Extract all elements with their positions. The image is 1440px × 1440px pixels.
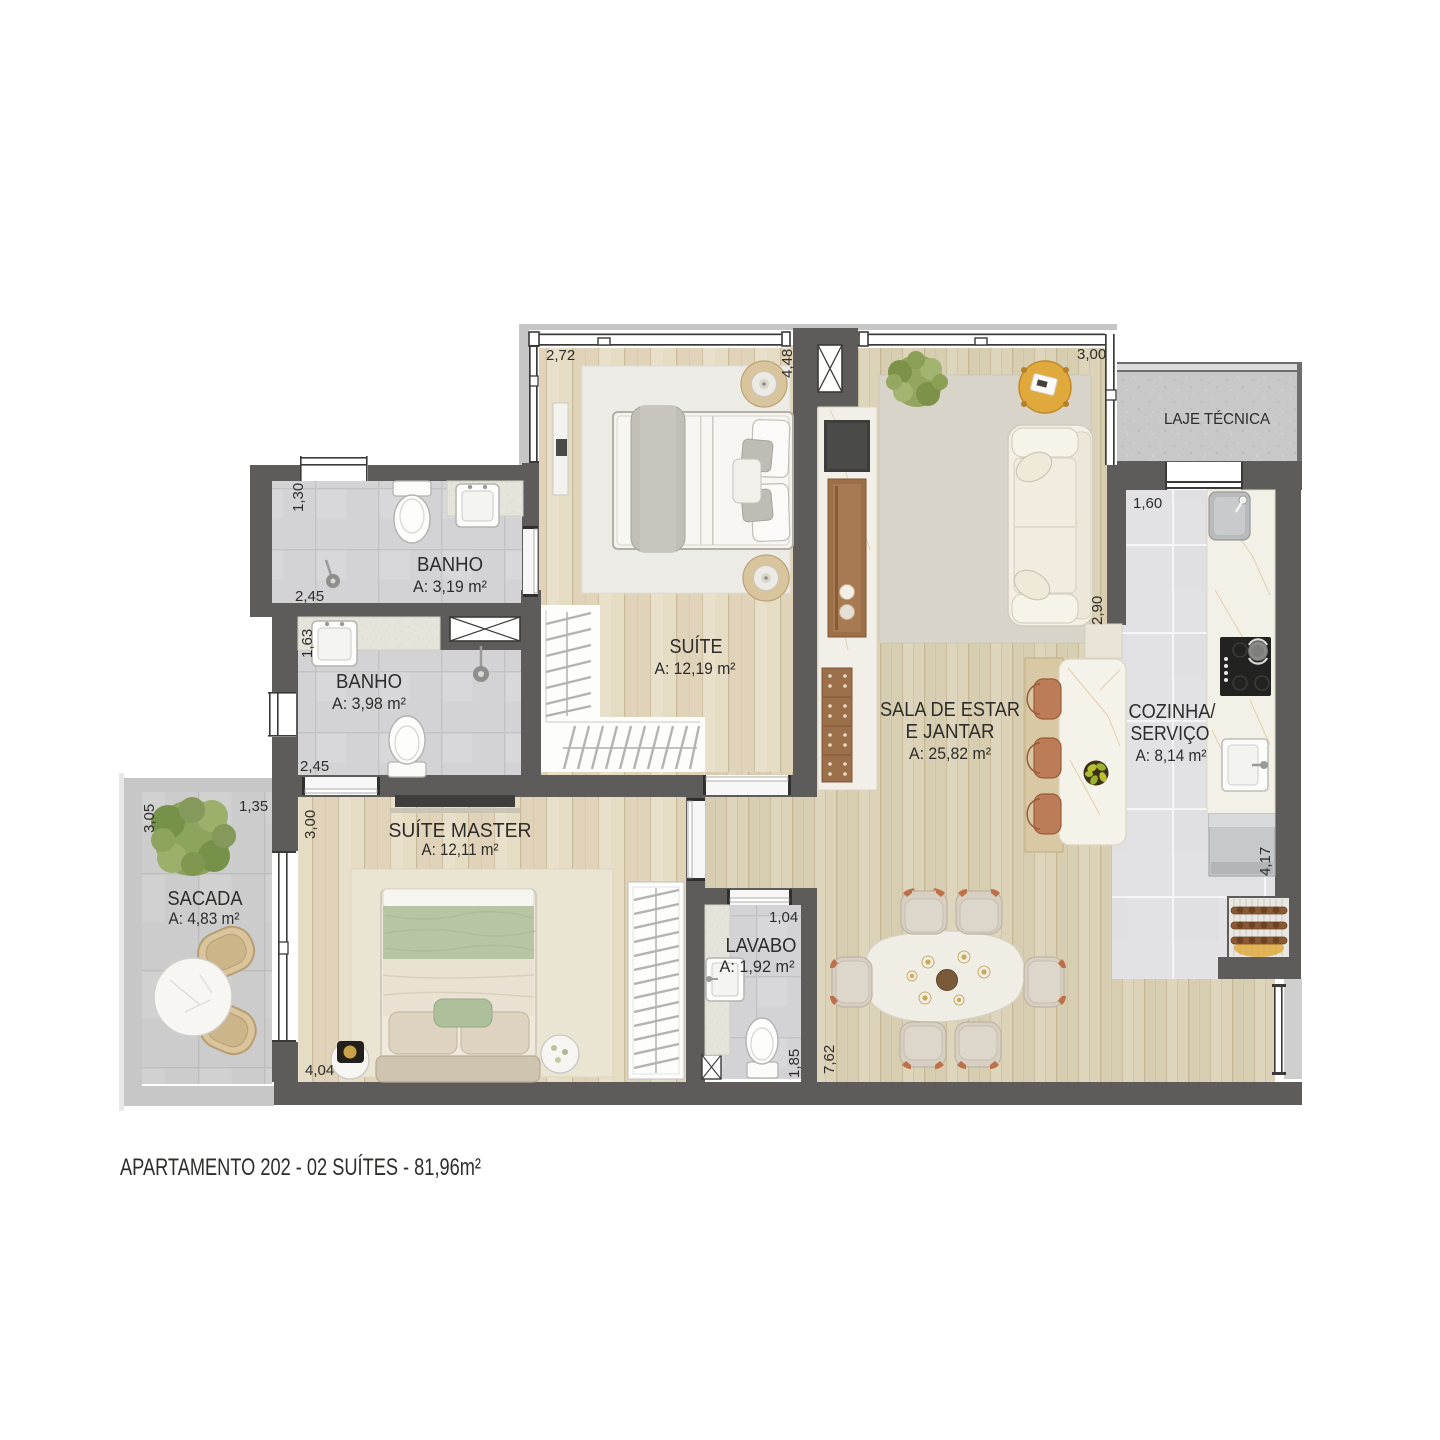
svg-text:SUÍTE: SUÍTE (670, 635, 723, 658)
svg-text:A: 1,92 m²: A: 1,92 m² (720, 957, 795, 976)
svg-text:A: 12,11 m²: A: 12,11 m² (422, 840, 499, 859)
svg-text:4,48: 4,48 (779, 349, 796, 378)
svg-text:A: 8,14 m²: A: 8,14 m² (1136, 746, 1207, 765)
svg-text:A: 4,83 m²: A: 4,83 m² (169, 909, 240, 928)
svg-text:A: 25,82 m²: A: 25,82 m² (909, 744, 991, 763)
svg-text:APARTAMENTO 202 - 02 SUÍTES -: APARTAMENTO 202 - 02 SUÍTES - 81,96m² (120, 1154, 481, 1181)
svg-text:SUÍTE MASTER: SUÍTE MASTER (389, 819, 532, 842)
svg-text:2,72: 2,72 (546, 347, 575, 364)
svg-text:A: 12,19 m²: A: 12,19 m² (655, 659, 736, 678)
svg-text:1,04: 1,04 (769, 909, 798, 926)
svg-text:SALA DE ESTAR: SALA DE ESTAR (880, 699, 1020, 721)
svg-text:A: 3,19 m²: A: 3,19 m² (413, 577, 487, 596)
svg-text:1,85: 1,85 (786, 1049, 803, 1078)
svg-text:4,17: 4,17 (1257, 847, 1274, 876)
svg-text:2,90: 2,90 (1089, 596, 1106, 625)
svg-text:3,00: 3,00 (1077, 346, 1106, 363)
svg-text:LAVABO: LAVABO (726, 935, 797, 957)
svg-text:2,45: 2,45 (300, 758, 329, 775)
svg-text:1,35: 1,35 (239, 798, 268, 815)
svg-text:1,30: 1,30 (290, 483, 307, 512)
svg-text:1,63: 1,63 (299, 629, 316, 658)
svg-text:7,62: 7,62 (821, 1045, 838, 1074)
svg-text:1,60: 1,60 (1133, 495, 1162, 512)
svg-text:SERVIÇO: SERVIÇO (1131, 723, 1210, 745)
svg-text:2,45: 2,45 (295, 588, 324, 605)
svg-text:A: 3,98 m²: A: 3,98 m² (332, 694, 406, 713)
svg-text:SACADA: SACADA (168, 888, 244, 910)
svg-text:BANHO: BANHO (417, 554, 483, 576)
svg-text:3,00: 3,00 (302, 810, 319, 839)
svg-text:BANHO: BANHO (336, 671, 402, 693)
svg-text:LAJE TÉCNICA: LAJE TÉCNICA (1164, 409, 1270, 428)
svg-text:4,04: 4,04 (305, 1062, 334, 1079)
svg-text:E JANTAR: E JANTAR (906, 721, 995, 743)
svg-text:COZINHA/: COZINHA/ (1129, 701, 1216, 723)
svg-text:3,05: 3,05 (141, 804, 158, 833)
